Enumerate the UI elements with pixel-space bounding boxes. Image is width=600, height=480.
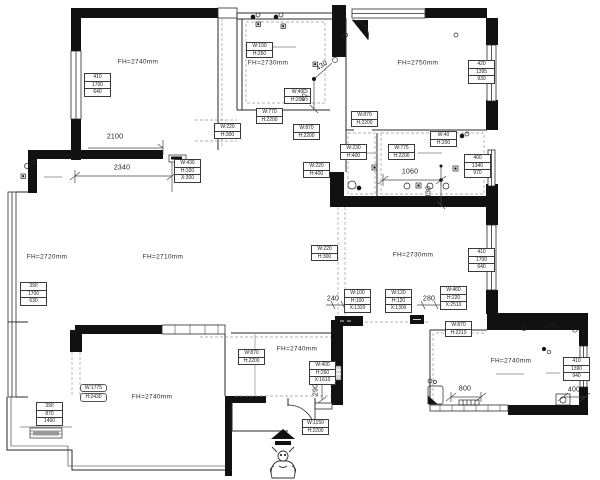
spec-box: W:770H:2200 [256, 109, 283, 124]
room-height-label: FH=2740mm [132, 394, 172, 401]
spec-box-row: H:300 [214, 131, 241, 139]
spec-box-row: H:2200 [351, 119, 378, 127]
window-sill-hatch [30, 428, 62, 438]
room-height-label: FH=2740mm [118, 59, 158, 66]
spec-box-row: H:200 [430, 139, 457, 147]
spec-box-row: X:300 [174, 174, 201, 182]
spec-box-row: H:2200 [388, 152, 415, 160]
spec-box-row: 940 [563, 372, 590, 380]
spec-box: W:870H:2200 [238, 350, 265, 365]
spec-box: W:220H:300 [311, 246, 338, 261]
spec-box-row: 1460 [36, 417, 63, 425]
windows [8, 9, 587, 397]
spec-box: 4201395930 [468, 61, 495, 84]
spec-box-row: W:1775 [80, 384, 107, 392]
spec-box-row: X:2510 [440, 301, 467, 309]
spec-box-row: H:400 [303, 170, 330, 178]
spec-box: W:1150H:2200 [302, 420, 329, 435]
spec-box: 4001340970 [464, 155, 491, 178]
spec-box-row: 640 [84, 88, 111, 96]
spec-box: W:460H:220X:2510 [440, 287, 467, 310]
person-figure-icon [270, 447, 295, 478]
dimension-text: 400 [568, 387, 580, 394]
spec-box-row: 930 [468, 75, 495, 83]
floor-plan-canvas: FH=2740mm FH=2730mm FH=2750mm FH=2720mm … [0, 0, 600, 480]
dimension-text: 240 [327, 296, 339, 303]
dimension-text: 800 [459, 386, 471, 393]
spec-box-row: H:2200 [238, 357, 265, 365]
dimension-text: 570 [303, 89, 310, 101]
spec-box-row: H:260 [246, 50, 273, 58]
spec-box: W:100H:260 [246, 43, 273, 58]
spec-box-row: H:2210 [445, 329, 472, 337]
spec-box-row: H:2200 [293, 132, 320, 140]
room-height-label: FH=2730mm [393, 252, 433, 259]
spec-box: W:220H:300 [214, 124, 241, 139]
dimension-text: 1060 [402, 169, 418, 176]
black-label-tags [335, 315, 424, 326]
room-height-label: FH=2740mm [491, 358, 531, 365]
spec-box: W:100H:100X:1320 [344, 290, 371, 313]
spec-box-row: H:2200 [302, 427, 329, 435]
spec-box-row: H:2430 [80, 393, 107, 401]
spec-box: 3908701460 [36, 403, 63, 426]
spec-box: W:430H:320X:300 [174, 160, 201, 183]
room-height-label: FH=2710mm [143, 254, 183, 261]
floor-plan-drawing [0, 0, 600, 480]
spec-box: W:230H:400 [340, 145, 367, 160]
spec-box-row: X:1320 [344, 304, 371, 312]
spec-box-row: H:2200 [256, 116, 283, 124]
room-height-label: FH=2720mm [27, 254, 67, 261]
spec-box: W:775H:2200 [388, 145, 415, 160]
spec-box-row: 630 [20, 297, 47, 305]
spec-box: 4101700640 [84, 74, 111, 97]
balcony-corner-door [352, 20, 369, 40]
dimension-text: 2340 [114, 165, 130, 172]
spec-box-row: H:300 [311, 253, 338, 261]
dimension-text: 430 [426, 186, 433, 198]
spec-box: W:120H:120X:1300 [385, 290, 412, 313]
room-height-label: FH=2730mm [248, 60, 288, 67]
dimension-text: 290 [313, 384, 320, 396]
dimension-lines [70, 63, 590, 403]
dimension-text: 280 [423, 296, 435, 303]
spec-box: 3901700630 [20, 283, 47, 306]
room-height-label: FH=2740mm [277, 346, 317, 353]
spec-box: W:1775H:2430 [80, 383, 107, 402]
spec-box: W:400H:260X:1610 [309, 362, 336, 385]
spec-box: W:870H:2200 [351, 112, 378, 127]
spec-box-row: X:1300 [385, 304, 412, 312]
spec-box: W:870H:2210 [445, 322, 472, 337]
spec-box: W:870H:2200 [293, 125, 320, 140]
room-height-label: FH=2750mm [398, 60, 438, 67]
spec-box-row: 970 [464, 169, 491, 177]
dimension-text: 2100 [107, 134, 123, 141]
spec-box-row: H:400 [340, 152, 367, 160]
spec-box: W:220H:400 [303, 163, 330, 178]
spec-box: 4101390940 [563, 358, 590, 381]
spec-box: 4101700640 [468, 249, 495, 272]
spec-box: W:40H:200 [430, 132, 457, 147]
spec-box-row: 640 [468, 263, 495, 271]
